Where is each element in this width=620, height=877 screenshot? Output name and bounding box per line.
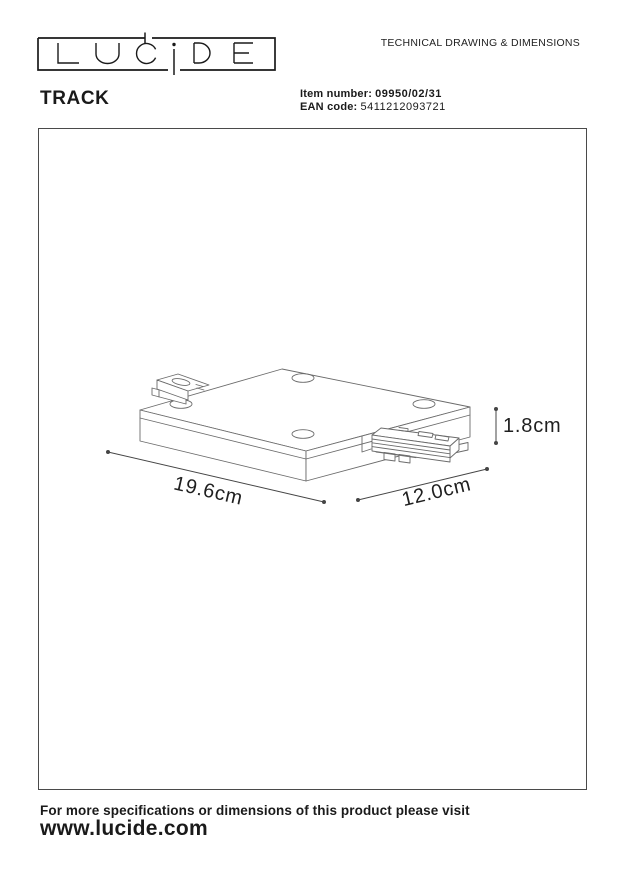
- spec-sheet-page: TECHNICAL DRAWING & DIMENSIONS TRACK Ite…: [0, 0, 620, 877]
- item-info: Item number: 09950/02/31 EAN code: 54112…: [300, 88, 446, 113]
- item-number-value: 09950/02/31: [375, 88, 442, 100]
- dimension-height: 1.8cm: [494, 407, 561, 445]
- dim-length-label: 19.6cm: [172, 473, 246, 510]
- drawing-frame: 19.6cm 12.0cm 1.8cm: [38, 128, 587, 790]
- footer-note: For more specifications or dimensions of…: [40, 803, 470, 818]
- ean-value: 5411212093721: [360, 101, 445, 113]
- item-number-label: Item number:: [300, 88, 372, 100]
- dimension-width: 12.0cm: [356, 467, 489, 511]
- ean-label: EAN code:: [300, 101, 357, 113]
- ean-row: EAN code: 5411212093721: [300, 101, 446, 114]
- dim-width-label: 12.0cm: [400, 473, 474, 511]
- item-number-row: Item number: 09950/02/31: [300, 88, 446, 101]
- lucide-logo: [37, 30, 277, 82]
- dim-height-label: 1.8cm: [503, 415, 561, 437]
- website-url: www.lucide.com: [40, 817, 208, 841]
- technical-drawing: 19.6cm 12.0cm 1.8cm: [39, 129, 586, 789]
- product-name: TRACK: [40, 88, 110, 110]
- doc-title: TECHNICAL DRAWING & DIMENSIONS: [381, 37, 580, 49]
